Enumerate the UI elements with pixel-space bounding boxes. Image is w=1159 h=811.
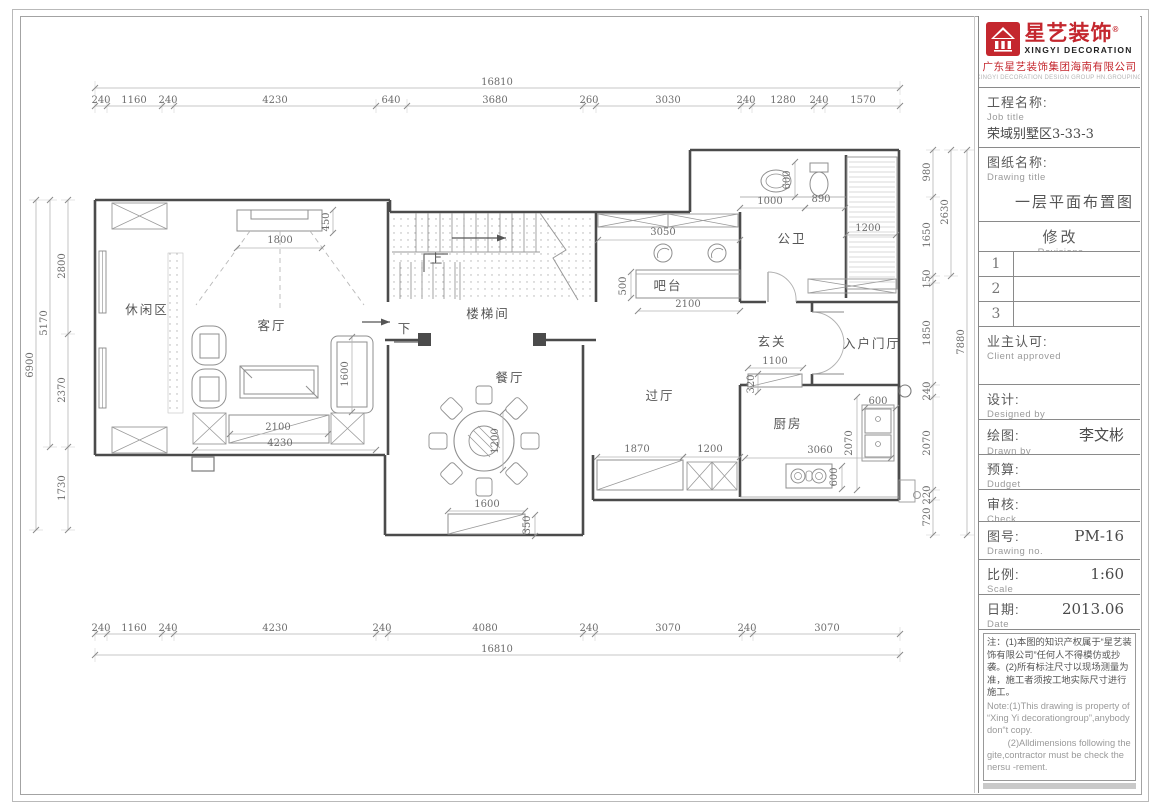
dim-label: 3070 — [814, 623, 839, 634]
dim-label: 7880 — [956, 329, 967, 354]
dim-label: 240 — [158, 623, 177, 634]
dim-label: 240 — [737, 623, 756, 634]
dim-label: 240 — [158, 95, 177, 106]
note-cn: 注：(1)本图的知识产权属于“星艺装饰有限公司”任何人不得模仿或抄袭。(2)所有… — [987, 636, 1132, 699]
dim-label: 350 — [522, 515, 533, 534]
dim-label: 240 — [91, 95, 110, 106]
dim-label: 16810 — [481, 77, 513, 88]
note-en-1: Note:(1)This drawing is property of “Xin… — [987, 700, 1132, 736]
dim-label: 3050 — [650, 227, 675, 238]
dim-label: 2100 — [675, 299, 700, 310]
dim-label: 4230 — [262, 623, 287, 634]
dim-label: 240 — [736, 95, 755, 106]
dim-label: 16810 — [481, 644, 513, 655]
dim-label: 1870 — [624, 444, 649, 455]
field-drawing-no: 图号: PM-16 Drawing no. — [979, 522, 1140, 560]
room-label: 上 — [430, 252, 445, 266]
room-label: 吧台 — [653, 278, 682, 293]
brand-name-en: XINGYI DECORATION — [1024, 45, 1132, 55]
room-label: 楼梯间 — [466, 306, 510, 321]
date-value: 2013.06 — [1062, 600, 1124, 618]
dim-label: 240 — [809, 95, 828, 106]
dim-label: 1570 — [850, 95, 875, 106]
dim-label: 1000 — [757, 196, 782, 207]
scale-value: 1:60 — [1090, 565, 1124, 583]
logo-block: 星艺装饰® XINGYI DECORATION 广东星艺装饰集团海南有限公司 X… — [979, 16, 1140, 88]
dim-label: 2100 — [265, 422, 290, 433]
dim-label: 1730 — [57, 475, 68, 500]
dim-label: 890 — [811, 194, 830, 205]
dim-label: 240 — [91, 623, 110, 634]
dim-label: 980 — [922, 162, 933, 181]
dim-label: 1850 — [922, 320, 933, 345]
dim-label: 3060 — [807, 445, 832, 456]
drawing-title-value: 一层平面布置图 — [987, 191, 1134, 212]
dim-label: 240 — [579, 623, 598, 634]
room-label: 入户门厅 — [843, 336, 901, 351]
dim-label: 1200 — [490, 428, 501, 453]
title-block: 星艺装饰® XINGYI DECORATION 广东星艺装饰集团海南有限公司 X… — [978, 16, 1140, 793]
dim-label: 640 — [381, 95, 400, 106]
dim-label: 1600 — [474, 499, 499, 510]
field-drawing-title: 图纸名称: Drawing title 一层平面布置图 — [979, 148, 1140, 222]
room-label: 厨房 — [773, 416, 802, 431]
field-date: 日期: 2013.06 Date — [979, 595, 1140, 630]
dim-label: 3680 — [482, 95, 507, 106]
field-job-title: 工程名称: Job title 荣域别墅区3-33-3 — [979, 88, 1140, 148]
titleblock-divider — [974, 16, 975, 793]
dim-label: 1160 — [121, 95, 146, 106]
room-label: 过厅 — [645, 389, 674, 403]
revision-row: 2 — [979, 277, 1140, 302]
dim-label: 4080 — [472, 623, 497, 634]
dim-label: 1650 — [922, 222, 933, 247]
company-name-en: XINGYI DECORATION DESIGN GROUP HN.GROUPI… — [979, 74, 1140, 81]
dim-label: 240 — [372, 623, 391, 634]
revisions-header: 修改 Revisions — [979, 222, 1140, 252]
field-drawn-by: 绘图: 李文彬 Drawn by — [979, 420, 1140, 455]
dim-label: 3070 — [655, 623, 680, 634]
dim-label: 500 — [618, 276, 629, 295]
room-label: 休闲区 — [125, 303, 169, 317]
dim-label: 3030 — [655, 95, 680, 106]
dim-label: 600 — [829, 467, 840, 486]
revision-row: 3 — [979, 302, 1140, 327]
dim-label: 4230 — [267, 438, 292, 449]
dim-label: 2630 — [940, 199, 951, 224]
xingyi-logo-icon — [986, 22, 1020, 56]
job-title-value: 荣域别墅区3-33-3 — [987, 123, 1134, 142]
dim-label: 320 — [746, 374, 757, 393]
dim-label: 1160 — [121, 623, 146, 634]
dim-label: 1600 — [340, 361, 351, 386]
drawn-by-value: 李文彬 — [1079, 424, 1124, 445]
notes-bottom-bar — [983, 783, 1136, 789]
dim-label: 720 — [922, 507, 933, 526]
note-en-2: (2)Alldimensions following the gite,cont… — [987, 737, 1132, 773]
dim-label: 4230 — [262, 95, 287, 106]
dim-label: 2070 — [922, 430, 933, 455]
field-designed-by: 设计: Designed by — [979, 385, 1140, 420]
field-check: 审核: Check — [979, 490, 1140, 522]
company-name: 广东星艺装饰集团海南有限公司 — [983, 59, 1137, 74]
notes-block: 注：(1)本图的知识产权属于“星艺装饰有限公司”任何人不得模仿或抄袭。(2)所有… — [979, 630, 1140, 793]
dim-label: 1100 — [762, 356, 787, 367]
brand-name: 星艺装饰® — [1024, 23, 1132, 44]
dim-label: 1200 — [855, 223, 880, 234]
dim-label: 1200 — [697, 444, 722, 455]
dim-label: 1280 — [770, 95, 795, 106]
dim-label: 600 — [782, 170, 793, 189]
room-label: 玄关 — [757, 334, 786, 349]
field-client-approved: 业主认可: Client approved — [979, 327, 1140, 385]
field-budget: 预算: Dudget — [979, 455, 1140, 490]
dim-label: 240 — [922, 381, 933, 400]
dim-label: 450 — [321, 212, 332, 231]
room-label: 下 — [398, 322, 413, 336]
hatch-zones — [168, 213, 594, 413]
field-scale: 比例: 1:60 Scale — [979, 560, 1140, 595]
dim-label: 2800 — [57, 253, 68, 278]
drawing-no-value: PM-16 — [1074, 527, 1124, 545]
drawing-sheet: 1681024011602404230640368026030302401280… — [0, 0, 1159, 811]
dim-label: 1800 — [267, 235, 292, 246]
revision-row: 1 — [979, 252, 1140, 277]
dim-label: 6900 — [25, 352, 36, 377]
dimension-chains: 1681024011602404230640368026030302401280… — [25, 77, 974, 662]
dim-label: 5170 — [39, 310, 50, 335]
room-label: 餐厅 — [495, 370, 524, 385]
dim-label: 150 — [922, 269, 933, 288]
dim-label: 2070 — [844, 430, 855, 455]
dim-label: 220 — [922, 485, 933, 504]
dim-label: 2370 — [57, 377, 68, 402]
room-label: 客厅 — [257, 318, 286, 333]
dim-label: 600 — [868, 396, 887, 407]
dim-label: 260 — [579, 95, 598, 106]
room-label: 公卫 — [777, 232, 806, 246]
